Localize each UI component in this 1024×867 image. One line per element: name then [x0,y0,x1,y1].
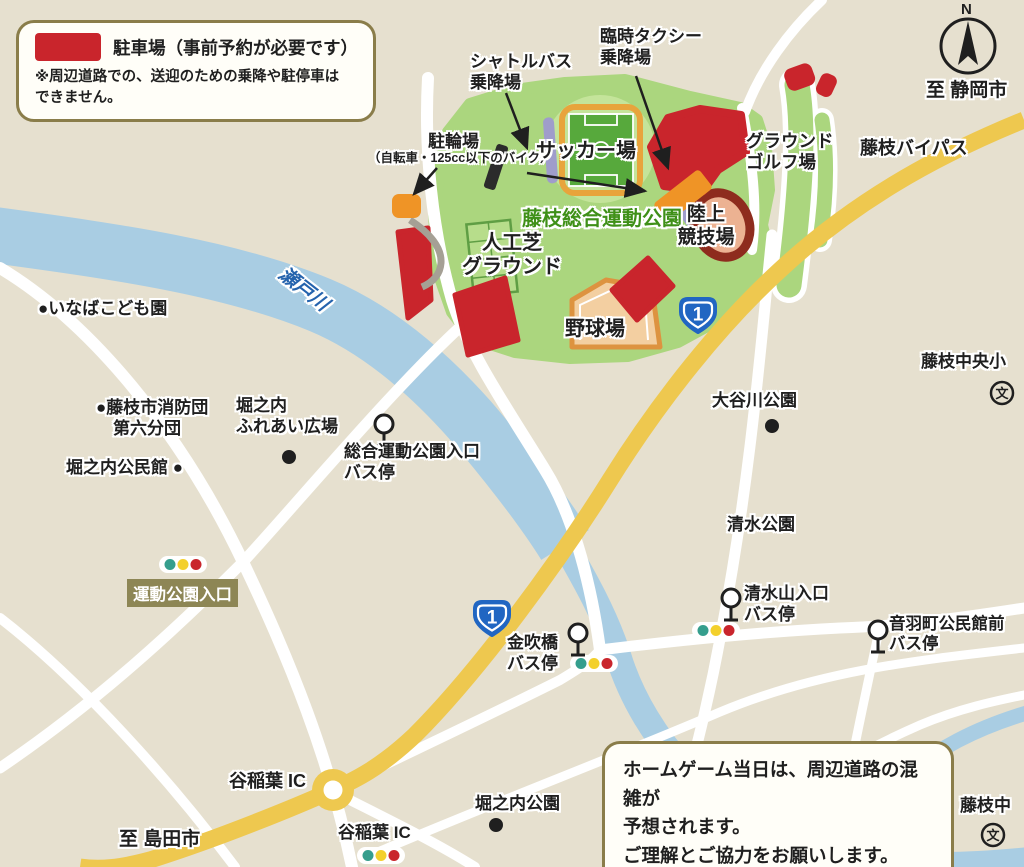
school-mark: 文 [995,386,1009,401]
label-compass-n: N [961,1,972,19]
label-to-shizuoka: 至 静岡市 [926,79,1007,102]
compass-icon [941,19,995,73]
label-fire-brigade: ●藤枝市消防団 第六分団 [96,398,208,439]
legend-note: ※周辺道路での、送迎のための乗降や駐停車は できません。 [35,67,361,109]
label-bicycle-parking-note: （自転車・125cc以下のバイク） [368,151,553,166]
label-turf-ground: 人工芝 グラウンド [452,231,572,280]
legend-box: 駐車場（事前予約が必要です） ※周辺道路での、送迎のための乗降や駐停車は できま… [16,20,376,122]
label-horinouchi-park: 堀之内公園 [475,794,560,815]
label-bicycle-parking: 駐輪場 [428,132,479,153]
legend-title: 駐車場（事前予約が必要です） [113,35,358,60]
label-undo-koen-intersection: 運動公園入口 [127,579,238,607]
school-icon: 文 [991,382,1013,404]
place-dot [282,450,296,464]
label-park-name: 藤枝総合運動公園 [522,207,682,231]
interchange-icon [312,769,354,811]
route-map: 1 1 [0,0,1024,867]
label-sogo-bus-stop: 総合運動公園入口 バス停 [344,442,480,483]
label-ground-golf: グラウンド ゴルフ場 [746,131,834,174]
label-fujieda-jhs: 藤枝中 [960,796,1011,817]
parking-legend-swatch [35,33,101,61]
place-dot [765,419,779,433]
label-athletics-stadium: 陸上 競技場 [661,203,751,249]
label-fujieda-chuo-elem: 藤枝中央小 [921,352,1006,373]
route-number: 1 [487,608,498,629]
label-baseball-field: 野球場 [565,317,625,341]
school-icon: 文 [982,824,1004,846]
label-taninaba-ic: 谷稲葉 IC [229,771,306,793]
label-soccer-field: サッカー場 [536,139,636,163]
label-shuttle-bus-stop: シャトルバス 乗降場 [470,52,572,93]
bicycle-parking-area [392,194,421,218]
label-bypass: 藤枝バイパス [860,138,968,160]
traffic-light-icon [570,655,618,672]
parking-area [398,228,431,318]
traffic-light-icon [357,847,405,864]
label-to-shimada: 至 島田市 [119,828,200,851]
label-inaba-kodomoen: ●いなばこども園 [38,299,167,320]
label-shimizu-park: 清水公園 [727,515,795,536]
label-otanigawa-park: 大谷川公園 [712,391,797,412]
label-shimizuyama-bus-stop: 清水山入口 バス停 [744,584,829,625]
label-kanabuki-bus-stop: 金吹橋 バス停 [507,633,558,674]
traffic-light-icon [692,622,740,639]
traffic-light-icon [159,556,207,573]
notice-box: ホームゲーム当日は、周辺道路の混雑が 予想されます。 ご理解とご協力をお願いしま… [602,741,954,867]
label-taninaba-ic-signal: 谷稲葉 IC [338,823,411,844]
place-dot [489,818,503,832]
label-horinouchi-kominkan: 堀之内公民館 ● [66,458,183,479]
label-horinouchi-hiroba: 堀之内 ふれあい広場 [236,396,338,437]
school-mark: 文 [986,828,1000,843]
label-taxi-stop: 臨時タクシー 乗降場 [600,27,702,68]
route-number: 1 [693,305,704,326]
parking-area [455,278,518,355]
label-otowa-bus-stop: 音羽町公民館前 バス停 [889,614,1005,654]
bus-stop-icon [569,624,587,655]
